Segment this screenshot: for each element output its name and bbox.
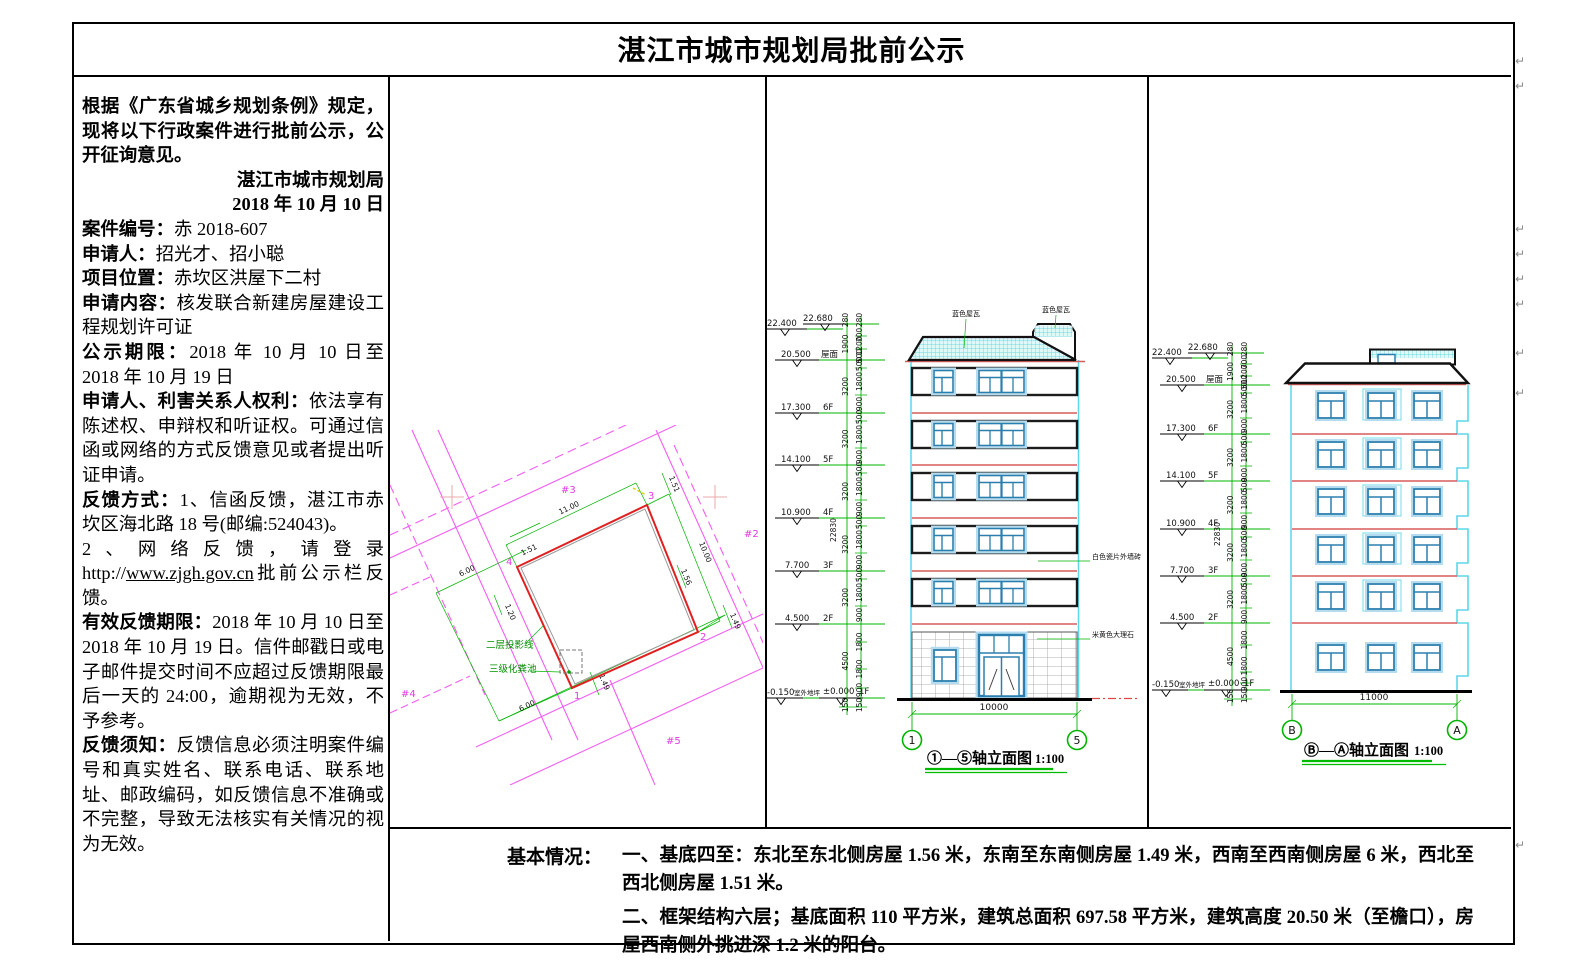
svg-text:3200: 3200	[1226, 543, 1235, 562]
elev1-levels: 22.400 22.680 20.500屋面 17.3006F 14.1005F…	[767, 314, 885, 705]
svg-text:1800: 1800	[1240, 630, 1249, 649]
field-period-label: 公示期限：	[82, 342, 189, 362]
svg-text:#5: #5	[666, 736, 681, 747]
svg-text:1.56: 1.56	[679, 568, 694, 587]
svg-text:#3: #3	[561, 485, 576, 496]
svg-text:1800: 1800	[855, 659, 864, 678]
windows-rear	[1316, 389, 1442, 672]
svg-text:280: 280	[855, 313, 864, 328]
svg-text:6.00: 6.00	[457, 563, 476, 578]
balcony-zigzag	[1457, 385, 1468, 690]
field-case-number-label: 案件编号：	[82, 219, 174, 239]
field-method-label: 反馈方式：	[82, 490, 180, 510]
divider-basic-row	[388, 827, 1511, 829]
field-web-feedback: 2、网络反馈，请登录 http://www.zjgh.gov.cn批前公示栏反馈…	[82, 537, 384, 611]
svg-text:900: 900	[1240, 610, 1249, 625]
field-rights-label: 申请人、利害关系人权利：	[82, 391, 309, 411]
elev1-title: ①—⑤轴立面图	[927, 749, 1032, 767]
svg-text:280: 280	[1226, 342, 1235, 357]
svg-text:4.500: 4.500	[1170, 613, 1194, 623]
svg-text:1800: 1800	[1240, 538, 1249, 557]
field-location: 项目位置：赤坎区洪屋下二村	[82, 266, 384, 291]
svg-text:22.680: 22.680	[1188, 343, 1218, 353]
field-content: 申请内容：核发联合新建房屋建设工程规划许可证	[82, 291, 384, 340]
svg-text:500: 500	[1240, 526, 1249, 541]
building-footprint	[517, 505, 698, 688]
ground-floor	[912, 632, 1077, 698]
svg-text:#2: #2	[744, 529, 759, 540]
svg-text:蓝色屋瓦: 蓝色屋瓦	[1042, 305, 1070, 314]
svg-text:10.900: 10.900	[1166, 519, 1196, 529]
second-floor-projection-note: 二层投影线	[486, 639, 534, 651]
svg-text:22.680: 22.680	[803, 314, 833, 324]
svg-text:17.300: 17.300	[781, 403, 811, 413]
svg-text:5F: 5F	[1208, 471, 1218, 481]
field-applicant-value: 招光才、招小聪	[156, 244, 285, 264]
paragraph-mark: ↵	[1515, 346, 1525, 360]
svg-text:500: 500	[855, 357, 864, 372]
svg-text:4.500: 4.500	[785, 614, 809, 624]
svg-text:7.700: 7.700	[1170, 566, 1194, 576]
svg-text:#4: #4	[401, 689, 416, 700]
svg-text:3F: 3F	[1208, 566, 1218, 576]
field-note-label: 反馈须知：	[82, 735, 177, 755]
svg-text:4500: 4500	[1226, 647, 1235, 666]
svg-text:1800: 1800	[855, 530, 864, 549]
septic-tank-note: 三级化粪池	[489, 663, 537, 675]
svg-text:10.00: 10.00	[697, 540, 713, 563]
basic-info-item-2: 二、框架结构六层；基底面积 110 平方米，建筑总面积 697.58 平方米，建…	[622, 904, 1474, 960]
svg-text:500: 500	[855, 568, 864, 583]
basic-info-item-1: 一、基底四至：东北至东北侧房屋 1.56 米，东南至东南侧房屋 1.49 米，西…	[622, 842, 1474, 898]
svg-text:900: 900	[855, 502, 864, 517]
svg-text:-0.150: -0.150	[767, 688, 794, 698]
building-facade-rear	[1280, 350, 1472, 692]
svg-text:2F: 2F	[1208, 613, 1218, 623]
svg-text:5F: 5F	[823, 455, 833, 465]
notice-text-panel: 根据《广东省城乡规划条例》规定，现将以下行政案件进行批前公示，公开征询意见。 湛…	[82, 94, 384, 856]
svg-text:14.100: 14.100	[1166, 471, 1196, 481]
svg-text:11000: 11000	[1360, 693, 1389, 703]
svg-text:22.400: 22.400	[767, 319, 797, 329]
svg-text:20.500: 20.500	[1166, 375, 1196, 385]
svg-text:900: 900	[855, 608, 864, 623]
notice-intro-text: 根据《广东省城乡规划条例》规定，现将以下行政案件进行批前公示，公开征询意见。	[82, 96, 384, 165]
field-valid-period: 有效反馈期限：2018 年 10 月 10 日至 2018 年 10 月 19 …	[82, 610, 384, 733]
svg-text:20.500: 20.500	[781, 350, 811, 360]
svg-text:900: 900	[855, 397, 864, 412]
svg-text:-0.150: -0.150	[1152, 680, 1179, 690]
yellow-marker	[633, 488, 646, 495]
svg-text:1800: 1800	[1240, 443, 1249, 462]
notice-org-date: 2018 年 10 月 10 日	[82, 192, 384, 217]
svg-text:7.700: 7.700	[785, 561, 809, 571]
svg-text:±0.000: ±0.000	[1208, 679, 1239, 689]
notice-org: 湛江市城市规划局	[82, 168, 384, 193]
elev2-scale: 1:100	[1414, 744, 1443, 758]
field-feedback-note: 反馈须知：反馈信息必须注明案件编号和真实姓名、联系电话、联系地址、邮政编码，如反…	[82, 733, 384, 856]
elev2-title: Ⓑ—Ⓐ轴立面图	[1304, 741, 1409, 759]
paragraph-mark: ↵	[1515, 79, 1525, 93]
svg-text:17.300: 17.300	[1166, 424, 1196, 434]
svg-text:A: A	[1453, 724, 1461, 737]
svg-text:3200: 3200	[1226, 448, 1235, 467]
paragraph-mark: ↵	[1515, 297, 1525, 311]
site-plan-drawing: 11.00 10.00 6.00 6.00 1.51 1.51 1.56 1.4…	[390, 425, 763, 785]
page-title: 湛江市城市规划局批前公示	[617, 29, 965, 69]
svg-text:1.51: 1.51	[519, 542, 538, 557]
notice-intro: 根据《广东省城乡规划条例》规定，现将以下行政案件进行批前公示，公开征询意见。	[82, 94, 384, 168]
svg-text:1800: 1800	[855, 372, 864, 391]
site-notes: 二层投影线 三级化粪池	[486, 626, 560, 675]
svg-text:4500: 4500	[841, 651, 850, 670]
svg-text:4: 4	[506, 557, 512, 568]
elev2-bottom: 11000 B A Ⓑ—Ⓐ轴立面图 1:100	[1283, 693, 1467, 765]
svg-text:500: 500	[855, 410, 864, 425]
svg-text:150: 150	[841, 698, 850, 713]
svg-text:1.20: 1.20	[503, 603, 518, 622]
svg-text:1800: 1800	[855, 425, 864, 444]
svg-text:500: 500	[855, 515, 864, 530]
paragraph-mark: ↵	[1515, 247, 1525, 261]
svg-text:10.900: 10.900	[781, 508, 811, 518]
svg-text:屋面: 屋面	[1206, 375, 1224, 385]
svg-text:10000: 10000	[980, 703, 1009, 713]
svg-text:3200: 3200	[1226, 400, 1235, 419]
field-location-label: 项目位置：	[82, 268, 174, 288]
svg-text:3200: 3200	[1226, 495, 1235, 514]
svg-text:22830: 22830	[1213, 522, 1222, 546]
svg-text:1.49: 1.49	[728, 612, 743, 631]
svg-text:6F: 6F	[1208, 424, 1218, 434]
svg-text:3200: 3200	[841, 482, 850, 501]
svg-text:1800: 1800	[1240, 394, 1249, 413]
field-rights: 申请人、利害关系人权利：依法享有陈述权、申辩权和听证权。可通过信函或网络的方式反…	[82, 389, 384, 487]
svg-text:屋面: 屋面	[821, 350, 839, 360]
svg-text:150: 150	[1226, 689, 1235, 704]
svg-text:2F: 2F	[823, 614, 833, 624]
title-row: 湛江市城市规划局批前公示	[72, 22, 1511, 77]
svg-text:±0.000: ±0.000	[823, 687, 854, 697]
paragraph-mark: ↵	[1515, 838, 1525, 852]
roof	[909, 324, 1076, 360]
svg-text:500: 500	[1240, 382, 1249, 397]
svg-text:3200: 3200	[841, 377, 850, 396]
paragraph-mark: ↵	[1515, 272, 1525, 286]
svg-text:3200: 3200	[1226, 590, 1235, 609]
svg-text:1900: 1900	[1226, 362, 1235, 381]
field-case-number: 案件编号：赤 2018-607	[82, 217, 384, 242]
paragraph-mark: ↵	[1515, 54, 1525, 68]
svg-text:22.400: 22.400	[1152, 348, 1182, 358]
document-page: 湛江市城市规划局批前公示 根据《广东省城乡规划条例》规定，现将以下行政案件进行批…	[0, 0, 1587, 965]
svg-text:1900: 1900	[841, 334, 850, 353]
elev2-dimension-chain: 280 280 1900 700 1200 500 3200 3200 3200…	[1213, 342, 1252, 706]
paragraph-mark: ↵	[1515, 222, 1525, 236]
survey-crosshairs	[440, 485, 727, 509]
elev2-levels: 22.400 22.680 20.500屋面 17.3006F 14.1005F…	[1152, 343, 1270, 697]
field-applicant-label: 申请人：	[82, 244, 156, 264]
svg-text:500: 500	[855, 462, 864, 477]
svg-text:6F: 6F	[823, 403, 833, 413]
field-valid-label: 有效反馈期限：	[82, 612, 212, 632]
svg-text:1800: 1800	[855, 583, 864, 602]
field-case-number-value: 赤 2018-607	[174, 219, 267, 239]
svg-text:3200: 3200	[841, 429, 850, 448]
field-content-label: 申请内容：	[82, 293, 177, 313]
basic-info-items: 一、基底四至：东北至东北侧房屋 1.56 米，东南至东南侧房屋 1.49 米，西…	[622, 842, 1474, 965]
svg-text:1800: 1800	[1240, 656, 1249, 675]
feedback-url-link[interactable]: www.zjgh.gov.cn	[126, 563, 254, 583]
field-location-value: 赤坎区洪屋下二村	[174, 268, 321, 288]
svg-text:280: 280	[1240, 342, 1249, 357]
elev1-scale: 1:100	[1035, 752, 1064, 766]
field-method: 反馈方式：1、信函反馈，湛江市赤坎区海北路 18 号(邮编:524043)。	[82, 488, 384, 537]
building-facade	[897, 324, 1139, 700]
svg-text:1800: 1800	[855, 632, 864, 651]
paragraph-mark: ↵	[1515, 386, 1525, 400]
svg-text:14.100: 14.100	[781, 455, 811, 465]
svg-text:室外地坪: 室外地坪	[794, 688, 821, 697]
site-dimension-lines: 11.00 10.00 6.00 6.00 1.51 1.51 1.56 1.4…	[436, 473, 743, 721]
svg-text:3200: 3200	[841, 588, 850, 607]
svg-text:蓝色屋瓦: 蓝色屋瓦	[952, 309, 980, 318]
svg-text:150: 150	[855, 698, 864, 713]
divider-col3	[1147, 77, 1149, 827]
elevation-1-5-drawing: 蓝色屋瓦 蓝色屋瓦 白色瓷片外墙砖 米黄色大理石 22.400 22.680 2…	[767, 288, 1145, 780]
svg-text:5: 5	[1074, 734, 1081, 747]
field-period: 公示期限：2018 年 10 月 10 日至 2018 年 10 月 19 日	[82, 340, 384, 389]
svg-text:11.00: 11.00	[557, 499, 580, 516]
svg-text:280: 280	[841, 313, 850, 328]
svg-text:3200: 3200	[841, 535, 850, 554]
svg-text:4F: 4F	[823, 508, 833, 518]
svg-text:900: 900	[855, 555, 864, 570]
site-roads	[390, 425, 763, 785]
roof-rear	[1286, 350, 1468, 384]
svg-text:1800: 1800	[855, 477, 864, 496]
svg-text:1: 1	[909, 734, 916, 747]
svg-text:3F: 3F	[823, 561, 833, 571]
svg-text:1800: 1800	[1240, 585, 1249, 604]
svg-text:3: 3	[648, 491, 654, 502]
svg-text:B: B	[1288, 724, 1296, 737]
svg-text:2: 2	[700, 632, 706, 643]
svg-text:150: 150	[1240, 689, 1249, 704]
svg-text:米黄色大理石: 米黄色大理石	[1092, 630, 1134, 639]
svg-text:900: 900	[855, 683, 864, 698]
svg-text:白色瓷片外墙砖: 白色瓷片外墙砖	[1092, 552, 1141, 561]
svg-text:500: 500	[1240, 573, 1249, 588]
svg-text:1800: 1800	[1240, 490, 1249, 509]
elevation-b-a-drawing: 22.400 22.680 20.500屋面 17.3006F 14.1005F…	[1152, 318, 1510, 790]
svg-text:1: 1	[574, 691, 580, 702]
svg-text:500: 500	[1240, 478, 1249, 493]
svg-text:室外地坪: 室外地坪	[1179, 680, 1206, 689]
svg-text:22830: 22830	[829, 518, 838, 542]
elev1-dimension-chain: 280 280 1900 700 1200 500 3200 3200 3200…	[829, 313, 867, 715]
basic-info-label: 基本情况：	[507, 842, 602, 869]
field-applicant: 申请人：招光才、招小聪	[82, 242, 384, 267]
elev1-bottom: 10000 1 5 ①—⑤轴立面图 1:100	[903, 702, 1087, 773]
svg-text:500: 500	[1240, 431, 1249, 446]
